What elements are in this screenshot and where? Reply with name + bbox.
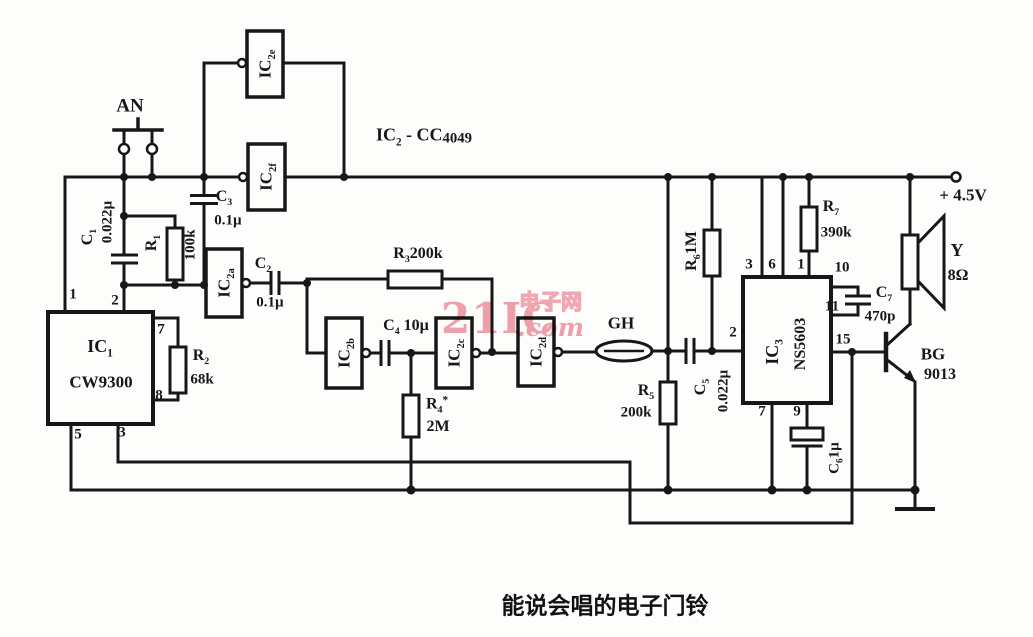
bg-ref: BG <box>921 346 946 363</box>
ic2f-bubble <box>239 173 247 181</box>
an-contact-right <box>147 144 157 154</box>
capacitor-c4 <box>381 340 389 366</box>
r5-ref: R5 <box>638 383 655 399</box>
r2-value: 68k <box>190 373 213 388</box>
ic3-pin-3: 3 <box>745 258 753 273</box>
wire-gnd-rail <box>71 424 915 490</box>
ic1-box <box>48 312 153 424</box>
ic3-pin-10: 10 <box>835 261 850 276</box>
r5-value: 200k <box>621 406 652 421</box>
capacitor-c3 <box>190 196 218 204</box>
wire-bjt-e <box>886 359 915 508</box>
ic3-pin-6: 6 <box>768 258 776 273</box>
ic2a-bubble <box>242 279 250 287</box>
wire-an-bar <box>114 119 162 130</box>
wire-ic2b-in <box>307 283 326 353</box>
c2-ref: C2 <box>255 256 272 272</box>
gh-label: GH <box>608 315 634 332</box>
resistor-r7 <box>801 207 817 251</box>
resistor-r2 <box>170 347 186 393</box>
capacitor-c2 <box>271 271 279 295</box>
schematic-page: AN IC2 - CC4049 C1 0.022µ R1 100k C3 0.1… <box>0 0 1033 637</box>
ic2b-label: IC2b <box>336 338 353 368</box>
ic2b-bubble <box>362 349 370 357</box>
r4-value: 2M <box>426 419 449 435</box>
capacitor-c7 <box>845 296 871 304</box>
c7-value: 470p <box>865 310 896 325</box>
ic3-part-number: NS5603 <box>793 318 809 370</box>
c4-label: C4 10µ <box>383 318 429 334</box>
ic1-ref: IC1 <box>87 337 113 355</box>
resistor-r6 <box>704 230 720 276</box>
ic1-pin-2: 2 <box>111 294 119 309</box>
ic2c-bubble <box>472 349 480 357</box>
capacitor-c6-body <box>791 428 823 440</box>
watermark-chinese: 电子网 <box>519 292 582 313</box>
r1-value: 100k <box>184 230 199 261</box>
bjt-emitter-arrow <box>904 370 916 383</box>
ic2e-bubble <box>238 59 246 67</box>
capacitor-c1 <box>111 255 138 263</box>
ic2a-label: IC2a <box>216 268 233 297</box>
ic3-pin-9: 9 <box>793 405 801 420</box>
ic3-pin-1: 1 <box>797 258 805 273</box>
watermark-com: .com <box>517 315 584 340</box>
resistor-r1 <box>167 228 183 280</box>
wire-gh-node <box>652 177 684 490</box>
an-contact-left <box>119 144 129 154</box>
c2-value: 0.1µ <box>256 296 283 311</box>
ic3-box <box>743 277 831 403</box>
speaker-coil <box>902 235 918 289</box>
ic3-pin-2: 2 <box>729 326 737 341</box>
r3-label: R3200k <box>393 246 442 262</box>
c3-value: 0.1µ <box>214 214 241 229</box>
resistor-r5 <box>660 382 676 424</box>
r7-ref: R7 <box>823 199 840 215</box>
speaker-ref: Y <box>951 241 964 259</box>
r7-value: 390k <box>821 226 852 241</box>
ic1-part-number: CW9300 <box>69 374 132 391</box>
capacitor-c5 <box>686 338 694 364</box>
c3-ref: C3 <box>216 189 233 205</box>
c5-ref: C5 <box>693 379 709 396</box>
c1-value: 0.022µ <box>101 201 116 243</box>
bg-part-number: 9013 <box>924 367 956 383</box>
speaker-impedance: 8Ω <box>948 268 969 284</box>
ic2-chip-note: IC2 - CC4049 <box>376 126 472 147</box>
ic1-pin-5: 5 <box>74 428 82 443</box>
resistor-r3 <box>388 271 442 288</box>
ic2f-label: IC2f <box>258 163 275 191</box>
ic1-pin-7: 7 <box>157 323 165 338</box>
c7-ref: C7 <box>876 285 893 301</box>
ic2e-label: IC2e <box>257 50 274 79</box>
an-label: AN <box>116 97 143 116</box>
r1-ref: R1 <box>144 235 160 252</box>
figure-caption: 能说会唱的电子门铃 <box>502 595 709 618</box>
r6-label: R61M <box>684 231 700 271</box>
ic1-pin-1: 1 <box>69 288 77 303</box>
speaker-cone <box>918 216 944 308</box>
ic1-pin-8: 8 <box>155 389 163 404</box>
ic3-pin-7: 7 <box>758 405 766 420</box>
c6-label: C61µ <box>828 442 843 474</box>
r2-ref: R2 <box>193 348 210 364</box>
c5-value: 0.022µ <box>717 370 732 412</box>
ic3-ref: IC3 <box>763 339 781 365</box>
resistor-r4 <box>403 395 419 437</box>
supply-label: + 4.5V <box>939 187 986 204</box>
ic1-pin-3: 3 <box>118 426 126 441</box>
ic3-pin-15: 15 <box>836 333 851 348</box>
ic2d-bubble <box>554 348 562 356</box>
c1-ref: C1 <box>80 229 96 246</box>
ic3-pin-11: 11 <box>825 300 839 315</box>
r4-ref: R4* <box>426 395 448 412</box>
supply-terminal <box>952 173 961 182</box>
